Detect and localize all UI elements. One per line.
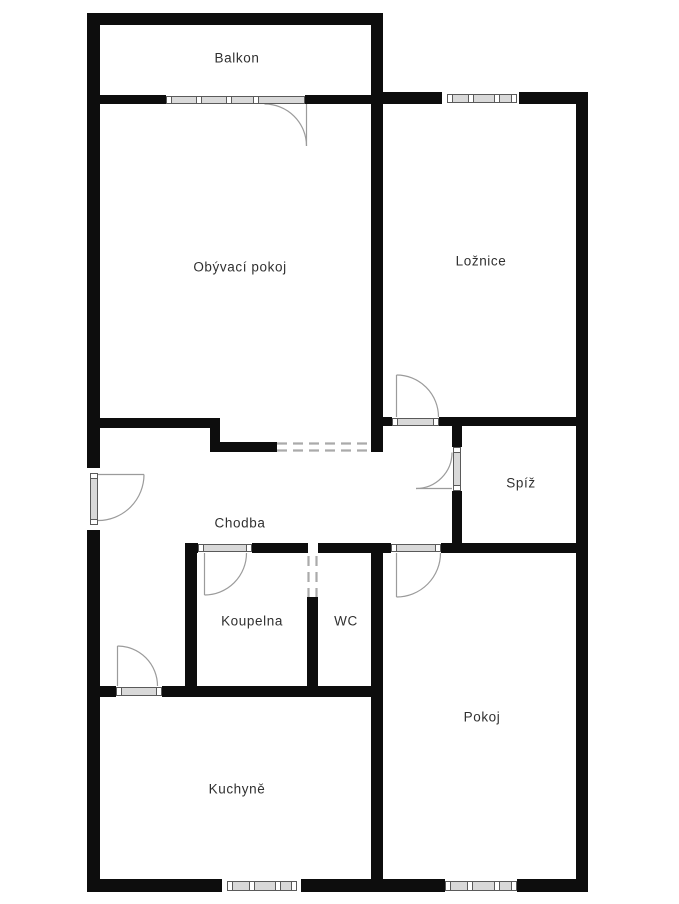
wall-koupelna-wc-divider — [307, 597, 318, 697]
koupelna-door-threshold — [198, 544, 252, 552]
room-label-balkon: Balkon — [215, 51, 260, 66]
kuchyne-door-arc — [118, 646, 158, 686]
kuchyne-door-threshold — [116, 687, 162, 696]
balcony-door-arc — [265, 104, 307, 146]
wall-hall-south-c — [318, 543, 391, 553]
pokoj-door-threshold — [391, 544, 441, 552]
balcony-window — [166, 96, 305, 104]
wall-center-vertical-upper — [371, 13, 383, 452]
wall-loznice-south-stub — [383, 417, 392, 426]
wall-bottom-left — [87, 879, 222, 892]
wall-koupelna-left — [185, 543, 197, 697]
wall-spiz-left-upper — [452, 426, 462, 447]
wall-balcony-top — [87, 13, 383, 25]
pokoj-door-arc — [397, 553, 441, 597]
room-label-obyvaci-pokoj: Obývací pokoj — [193, 260, 286, 275]
wall-bottom-right — [517, 879, 588, 892]
room-label-pokoj: Pokoj — [464, 710, 501, 725]
room-label-kuchyne: Kuchyně — [209, 782, 266, 797]
wall-pokoj-left — [371, 553, 383, 892]
wall-balcony-living-right — [305, 95, 383, 104]
room-label-koupelna: Koupelna — [221, 614, 283, 629]
wall-left-lower — [87, 530, 100, 892]
entry-door-arc — [98, 475, 144, 521]
loznice-door-arc — [397, 375, 439, 417]
wall-kitchen-north-left — [87, 686, 116, 697]
room-label-chodba: Chodba — [215, 516, 266, 531]
room-label-loznice: Ložnice — [456, 254, 507, 269]
wall-living-south-left — [97, 418, 220, 428]
wall-right-outer — [576, 92, 588, 892]
spiz-door-threshold — [453, 447, 461, 491]
wall-living-south-right — [210, 442, 277, 452]
wall-hall-south-d — [441, 543, 588, 553]
wall-balcony-living-left — [87, 95, 166, 104]
entry-door-threshold — [90, 473, 98, 525]
wall-loznice-spiz-south — [439, 417, 578, 426]
loznice-window — [447, 94, 517, 103]
wall-hall-south-b — [252, 543, 308, 553]
koupelna-door-arc — [205, 553, 247, 595]
room-label-wc: WC — [334, 614, 358, 629]
loznice-door-threshold — [392, 418, 439, 426]
wall-left-upper — [87, 13, 100, 468]
wall-kitchen-north-right — [162, 686, 383, 697]
room-label-spiz: Spíž — [506, 476, 535, 491]
floor-plan: Balkon Obývací pokoj Ložnice Spíž Chodba… — [0, 0, 679, 904]
kuchyne-window — [227, 881, 297, 891]
spiz-door-arc — [416, 453, 452, 489]
pokoj-window — [445, 881, 517, 891]
